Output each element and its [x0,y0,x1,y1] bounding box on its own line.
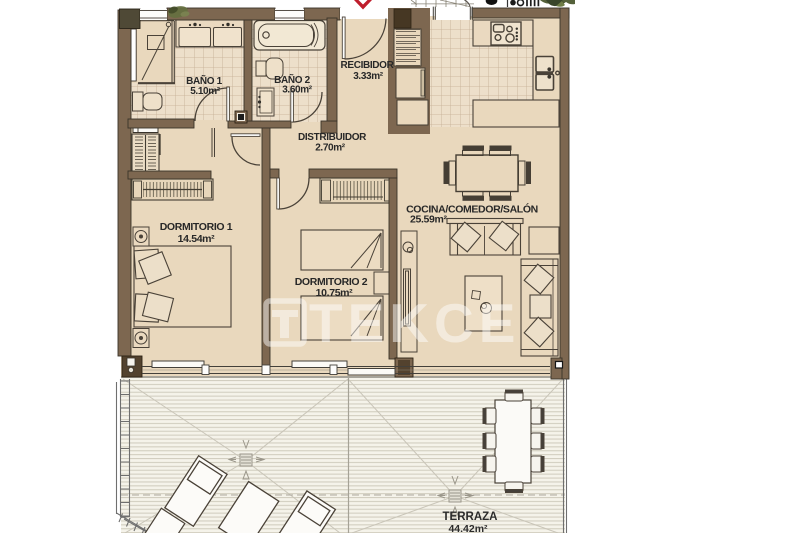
svg-text:TERRAZA: TERRAZA [443,511,498,523]
svg-text:25.59m²: 25.59m² [410,214,448,226]
svg-text:44.42m²: 44.42m² [448,523,488,533]
svg-text:14.54m²: 14.54m² [178,233,216,245]
svg-text:3.60m²: 3.60m² [282,85,313,96]
svg-text:DISTRIBUIDOR: DISTRIBUIDOR [298,132,367,143]
svg-text:DORMITORIO 1: DORMITORIO 1 [160,221,233,233]
svg-text:RECIBIDOR: RECIBIDOR [341,60,395,71]
svg-text:5.10m²: 5.10m² [190,86,221,97]
svg-text:2.70m²: 2.70m² [315,143,346,154]
svg-text:3.33m²: 3.33m² [353,71,384,82]
svg-text:TEKCE: TEKCE [309,292,520,354]
